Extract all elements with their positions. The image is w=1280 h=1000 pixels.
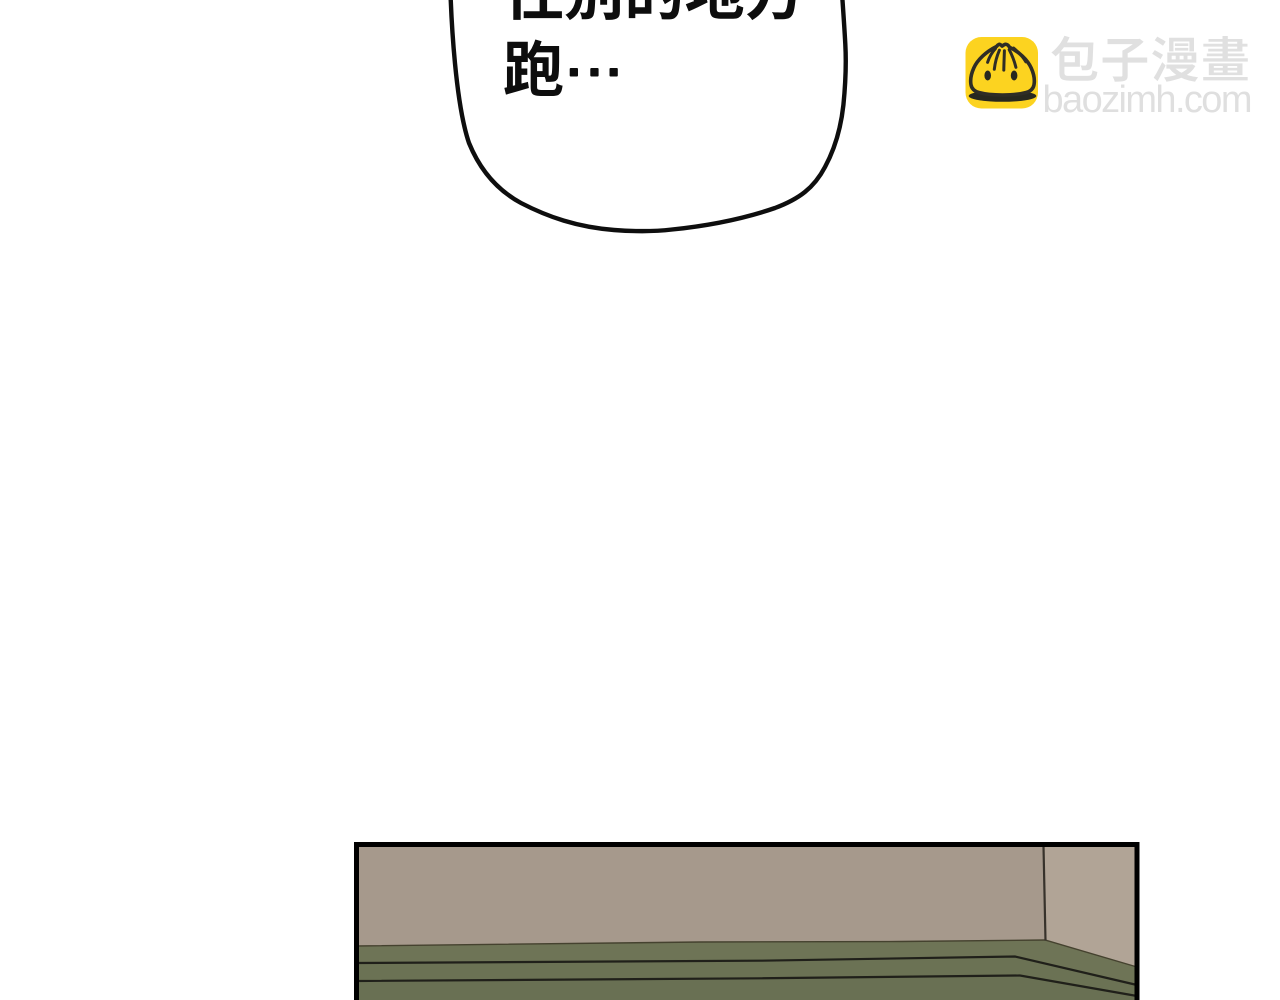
svg-text:baozimh.com: baozimh.com [1043, 79, 1253, 121]
